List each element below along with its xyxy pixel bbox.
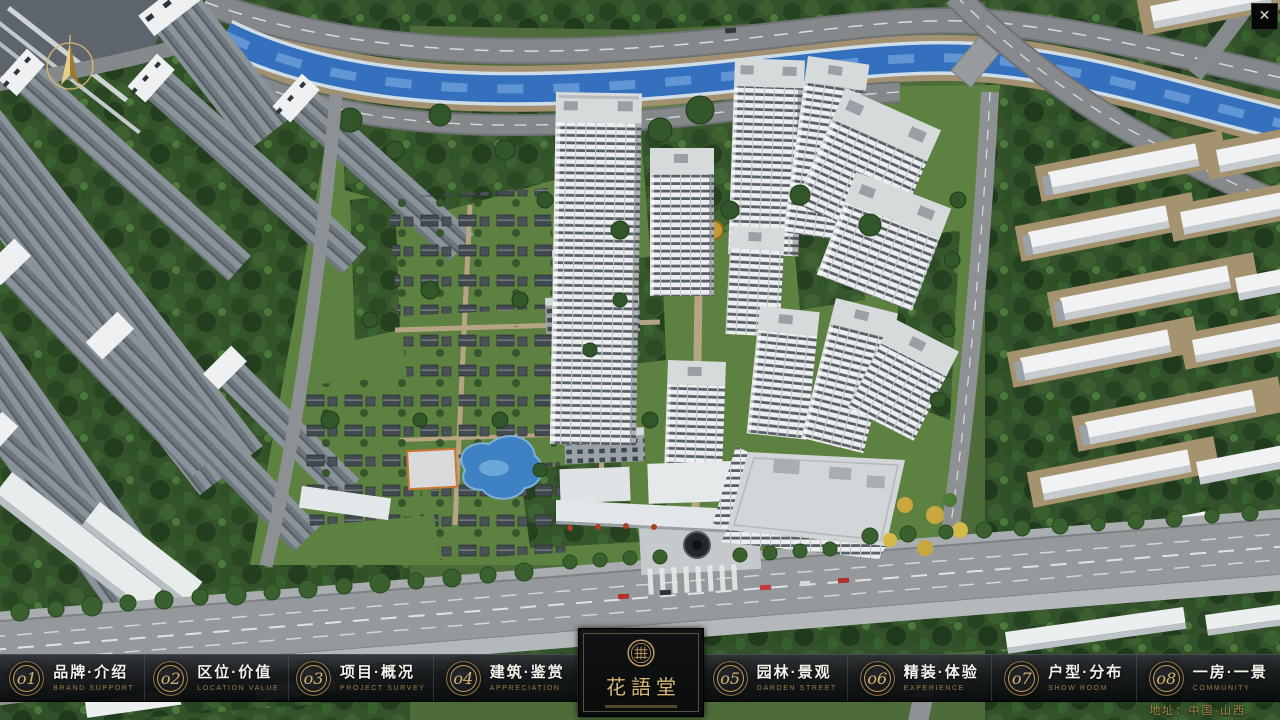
nav-item-room-view[interactable]: o8 一房·一景COMMUNITY <box>1136 655 1280 701</box>
nav-number: o2 <box>161 669 181 688</box>
highrise-towers <box>550 56 959 484</box>
nav-number-badge: o6 <box>860 661 895 696</box>
nav-label-cn: 一房·一景 <box>1193 665 1268 680</box>
nav-number: o6 <box>867 669 887 688</box>
nav-number: o5 <box>720 669 740 688</box>
car <box>725 28 736 34</box>
nav-item-floorplan-distribution[interactable]: o7 户型·分布SHOW ROOM <box>991 655 1136 701</box>
logo-name: 花語堂 <box>601 671 681 700</box>
nav-label-en: PROJECT SURVEY <box>340 684 426 692</box>
nav-label-en: LOCATION VALUE <box>197 684 279 692</box>
nav-label-en: BRAND SUPPORT <box>53 684 134 692</box>
nav-label-cn: 区位·价值 <box>197 665 272 680</box>
nav-number: o7 <box>1012 669 1032 688</box>
nav-label-cn: 户型·分布 <box>1048 665 1123 680</box>
nav-item-interior-experience[interactable]: o6 精装·体验EXPERIENCE <box>847 655 992 701</box>
nav-number-badge: o7 <box>1004 661 1039 696</box>
nav-label-en: SHOW ROOM <box>1048 684 1108 692</box>
nav-item-garden-landscape[interactable]: o5 园林·景观GARDEN STREET <box>703 655 847 701</box>
nav-number-badge: o1 <box>9 661 44 696</box>
nav-label-en: COMMUNITY <box>1193 684 1251 692</box>
nav-number: o1 <box>17 669 37 688</box>
nav-item-project-overview[interactable]: o3 项目·概况PROJECT SURVEY <box>288 655 433 701</box>
nav-label-cn: 品牌·介绍 <box>53 665 128 680</box>
nav-label-en: GARDEN STREET <box>757 684 837 692</box>
masterplan-3d-map[interactable] <box>0 0 1280 720</box>
nav-item-brand-intro[interactable]: o1 品牌·介绍BRAND SUPPORT <box>0 655 144 701</box>
nav-label-en: APPRECIATION <box>490 684 561 692</box>
logo-plaque-frame: 花語堂 <box>583 633 699 712</box>
nav-label-cn: 园林·景观 <box>757 665 832 680</box>
nav-number-badge: o8 <box>1149 661 1184 696</box>
logo-seal-icon <box>626 638 656 668</box>
nav-number-badge: o2 <box>153 661 188 696</box>
nav-number-badge: o4 <box>446 661 481 696</box>
nav-label-en: EXPERIENCE <box>904 684 965 692</box>
project-address: 地址：中国·山西 <box>1149 702 1246 718</box>
nav-item-location-value[interactable]: o2 区位·价值LOCATION VALUE <box>144 655 289 701</box>
nav-label-cn: 精装·体验 <box>904 665 979 680</box>
nav-label-cn: 项目·概况 <box>340 665 415 680</box>
compass-north-indicator <box>42 34 98 94</box>
nav-number-badge: o5 <box>713 661 748 696</box>
app-window: ✕ o1 品牌·介绍BRAND SUPPORT o2 区位·价值LOCATION… <box>0 0 1280 720</box>
nav-item-architecture[interactable]: o4 建筑·鉴赏APPRECIATION <box>433 655 578 701</box>
logo-tagline <box>605 705 677 708</box>
nav-label-cn: 建筑·鉴赏 <box>490 665 565 680</box>
north-arrow-icon <box>70 42 79 85</box>
leaning-tower-southeast <box>713 446 905 559</box>
nav-number: o8 <box>1156 669 1176 688</box>
nav-number: o4 <box>453 669 473 688</box>
nav-number-badge: o3 <box>296 661 331 696</box>
north-arrow-icon <box>61 42 70 85</box>
nav-number: o3 <box>304 669 324 688</box>
logo-plaque[interactable]: 花語堂 <box>578 628 704 717</box>
close-button[interactable]: ✕ <box>1251 3 1278 30</box>
